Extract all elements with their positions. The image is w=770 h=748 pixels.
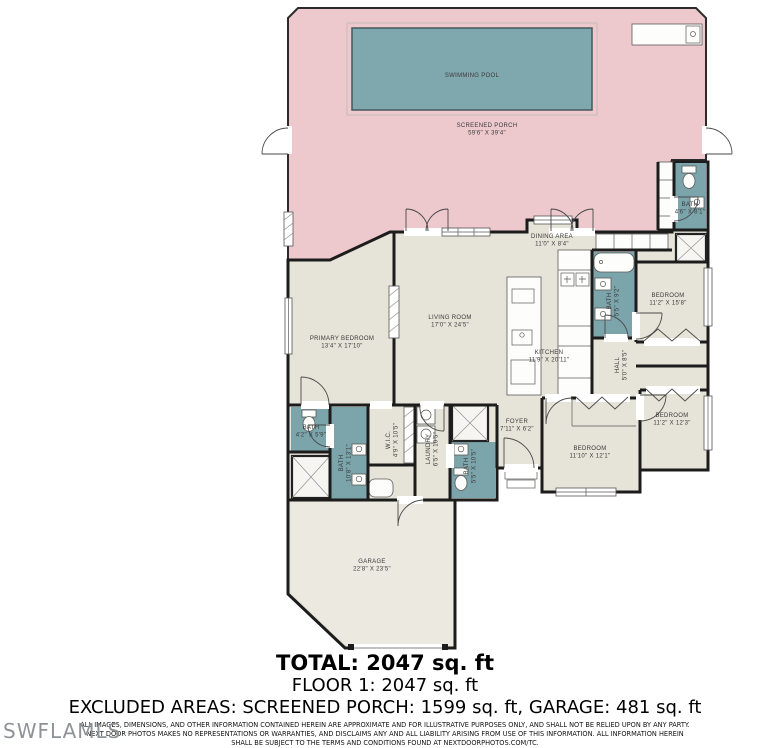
room-name: HALL: [615, 357, 621, 374]
room-dimensions: 4'9" X 10'5": [394, 423, 400, 457]
room-dimensions: 11'0" X 8'4": [535, 242, 569, 248]
room-dimensions: 11'9" X 20'11": [529, 358, 570, 364]
room-dimensions: 6'5" X 10'5": [434, 432, 440, 466]
room-name: FOYER: [506, 419, 529, 425]
room-name: PRIMARY BEDROOM: [310, 336, 374, 342]
room-dimensions: 5'5" X 10'5": [472, 449, 478, 483]
room-name: GARAGE: [358, 559, 385, 565]
room-name: BATH: [464, 458, 470, 475]
toilet-icon: [682, 166, 696, 173]
room-name: LAUNDRY: [426, 434, 432, 465]
floorplan-svg: SWIMMING POOLSCREENED PORCH59'6" X 39'4"…: [0, 0, 770, 650]
room-dimensions: 5'0" X 8'5": [623, 350, 629, 381]
laundry-tub: [369, 479, 393, 497]
total-area-text: TOTAL: 2047 sq. ft: [0, 652, 770, 675]
room-name: BEDROOM: [573, 446, 606, 452]
room-dimensions: 7'11" X 6'2": [500, 427, 534, 433]
room-name: BATH: [682, 202, 699, 208]
room-dimensions: 5'5" X 9'2": [615, 286, 621, 317]
room-label-garage: GARAGE22'8" X 23'5": [353, 559, 391, 573]
room-dimensions: 4'6" X 8'1": [675, 210, 706, 216]
room-dimensions: 11'2" X 15'8": [649, 301, 686, 307]
room-name: BATH: [607, 293, 613, 310]
room-label-bedroom-3: BEDROOM11'10" X 12'1": [570, 446, 611, 460]
room-name: BEDROOM: [651, 293, 684, 299]
room-name: KITCHEN: [535, 350, 563, 356]
floor1-area-text: FLOOR 1: 2047 sq. ft: [0, 675, 770, 697]
room-dimensions: 22'8" X 23'5": [353, 567, 391, 573]
entry-step: [505, 471, 537, 479]
room-label-living-room: LIVING ROOM17'0" X 24'5": [428, 315, 471, 329]
room-name: BEDROOM: [655, 413, 688, 419]
room-dimensions: 11'2" X 12'3": [653, 421, 690, 427]
watermark-swflamls: SWFLAMLS: [3, 719, 121, 743]
room-dimensions: 4'2" X 5'9": [296, 433, 327, 439]
bathtub-icon: [594, 253, 634, 272]
entry-step: [507, 480, 535, 488]
wic-shelves: [404, 407, 414, 463]
outdoor-kitchen: [632, 24, 702, 45]
room-name: BATH: [303, 425, 320, 431]
excluded-areas-text: EXCLUDED AREAS: SCREENED PORCH: 1599 sq.…: [0, 697, 770, 719]
room-label-kitchen: KITCHEN11'9" X 20'11": [529, 350, 570, 364]
room-dimensions: 13'4" X 17'10": [321, 344, 362, 350]
sink-icon: [352, 444, 366, 455]
room-name: W.I.C.: [386, 431, 392, 449]
sink-icon: [352, 474, 366, 485]
sink-icon: [595, 278, 611, 290]
kitchen-counter: [558, 250, 592, 398]
room-label-dining-area: DINING AREA11'0" X 8'4": [531, 234, 573, 248]
swimming-pool-shape: [347, 23, 597, 115]
room-label-swimming-pool: SWIMMING POOL: [445, 73, 500, 79]
room-dimensions: 10'8" X 13'1": [347, 444, 353, 482]
room-dimensions: 59'6" X 39'4": [468, 131, 506, 137]
room-name: SWIMMING POOL: [445, 73, 500, 79]
room-name: LIVING ROOM: [428, 315, 471, 321]
garage-floor: [291, 502, 453, 646]
room-dimensions: 11'10" X 12'1": [570, 454, 611, 460]
room-name: BATH: [339, 455, 345, 472]
sink-icon: [454, 444, 468, 455]
toilet-icon: [302, 410, 316, 417]
room-name: DINING AREA: [531, 234, 573, 240]
window: [389, 286, 399, 338]
room-label-laundry: LAUNDRY6'5" X 10'5": [426, 432, 440, 466]
room-label-bedroom-1: BEDROOM11'2" X 15'8": [649, 293, 686, 307]
room-name: SCREENED PORCH: [457, 123, 518, 129]
room-label-bedroom-2: BEDROOM11'2" X 12'3": [653, 413, 690, 427]
room-dimensions: 17'0" X 24'5": [431, 323, 469, 329]
